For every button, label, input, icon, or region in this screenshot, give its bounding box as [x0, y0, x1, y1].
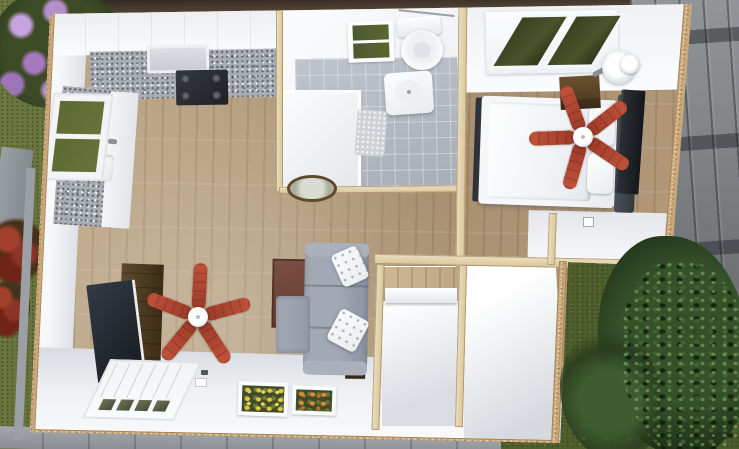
yellow-flower-bed — [242, 385, 285, 412]
garden-bush-foliage — [620, 260, 739, 449]
closet-shelf — [385, 288, 457, 303]
switch-plate — [196, 379, 206, 386]
burner — [212, 91, 221, 100]
stove-cooktop — [176, 70, 229, 106]
flower-box-window — [292, 385, 337, 416]
door-glass-pane — [116, 399, 134, 410]
door-panel-grooves — [100, 363, 192, 399]
floor-plan-render — [0, 0, 739, 449]
bedroom-window — [485, 10, 618, 74]
light-switch — [584, 218, 593, 226]
door-glass-pane — [98, 399, 116, 410]
burner — [212, 74, 221, 83]
bath-mat — [354, 109, 387, 157]
kitchen-window — [45, 95, 112, 179]
wall-sconce — [620, 54, 640, 74]
shower-enclosure — [283, 90, 361, 186]
window-pane — [52, 139, 100, 173]
burner — [181, 74, 190, 83]
fan-hub-dot — [581, 135, 585, 139]
fan-blade — [191, 263, 207, 311]
door-glass-pane — [134, 400, 152, 411]
closet-room — [464, 266, 566, 440]
flower-box-window — [237, 381, 288, 417]
sink-drain — [407, 90, 411, 94]
door-hardware — [201, 370, 208, 375]
orange-flower-bed — [296, 389, 333, 411]
stud-wall — [276, 8, 283, 192]
window-pane — [352, 24, 389, 40]
window-pane — [353, 42, 390, 58]
burner — [181, 91, 190, 100]
toilet-seat — [413, 42, 431, 58]
cushion-seam — [304, 284, 368, 287]
sofa-chaise — [276, 296, 310, 353]
faucet — [108, 139, 117, 145]
fan-hub-dot — [196, 315, 200, 319]
window-pane — [56, 101, 104, 135]
fan-blade — [529, 130, 576, 146]
ceiling-light — [290, 178, 334, 199]
sofa-armrest — [303, 360, 367, 375]
door-glass-pane — [152, 400, 170, 411]
bathroom-window — [347, 20, 394, 63]
